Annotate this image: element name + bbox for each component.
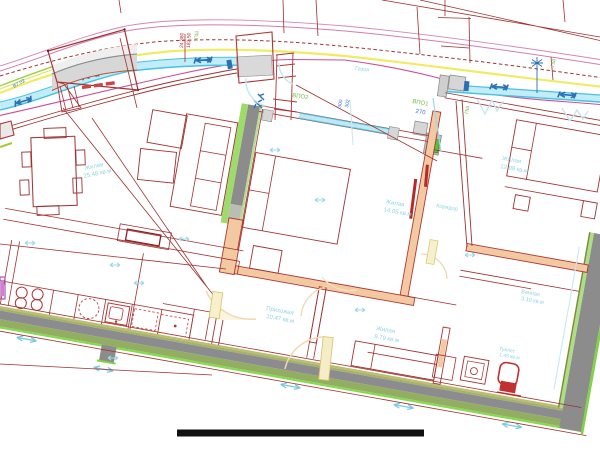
svg-text:182.50: 182.50 xyxy=(186,32,193,48)
svg-text:24.380: 24.380 xyxy=(179,32,186,48)
svg-text:ПШ: ПШ xyxy=(194,30,200,39)
